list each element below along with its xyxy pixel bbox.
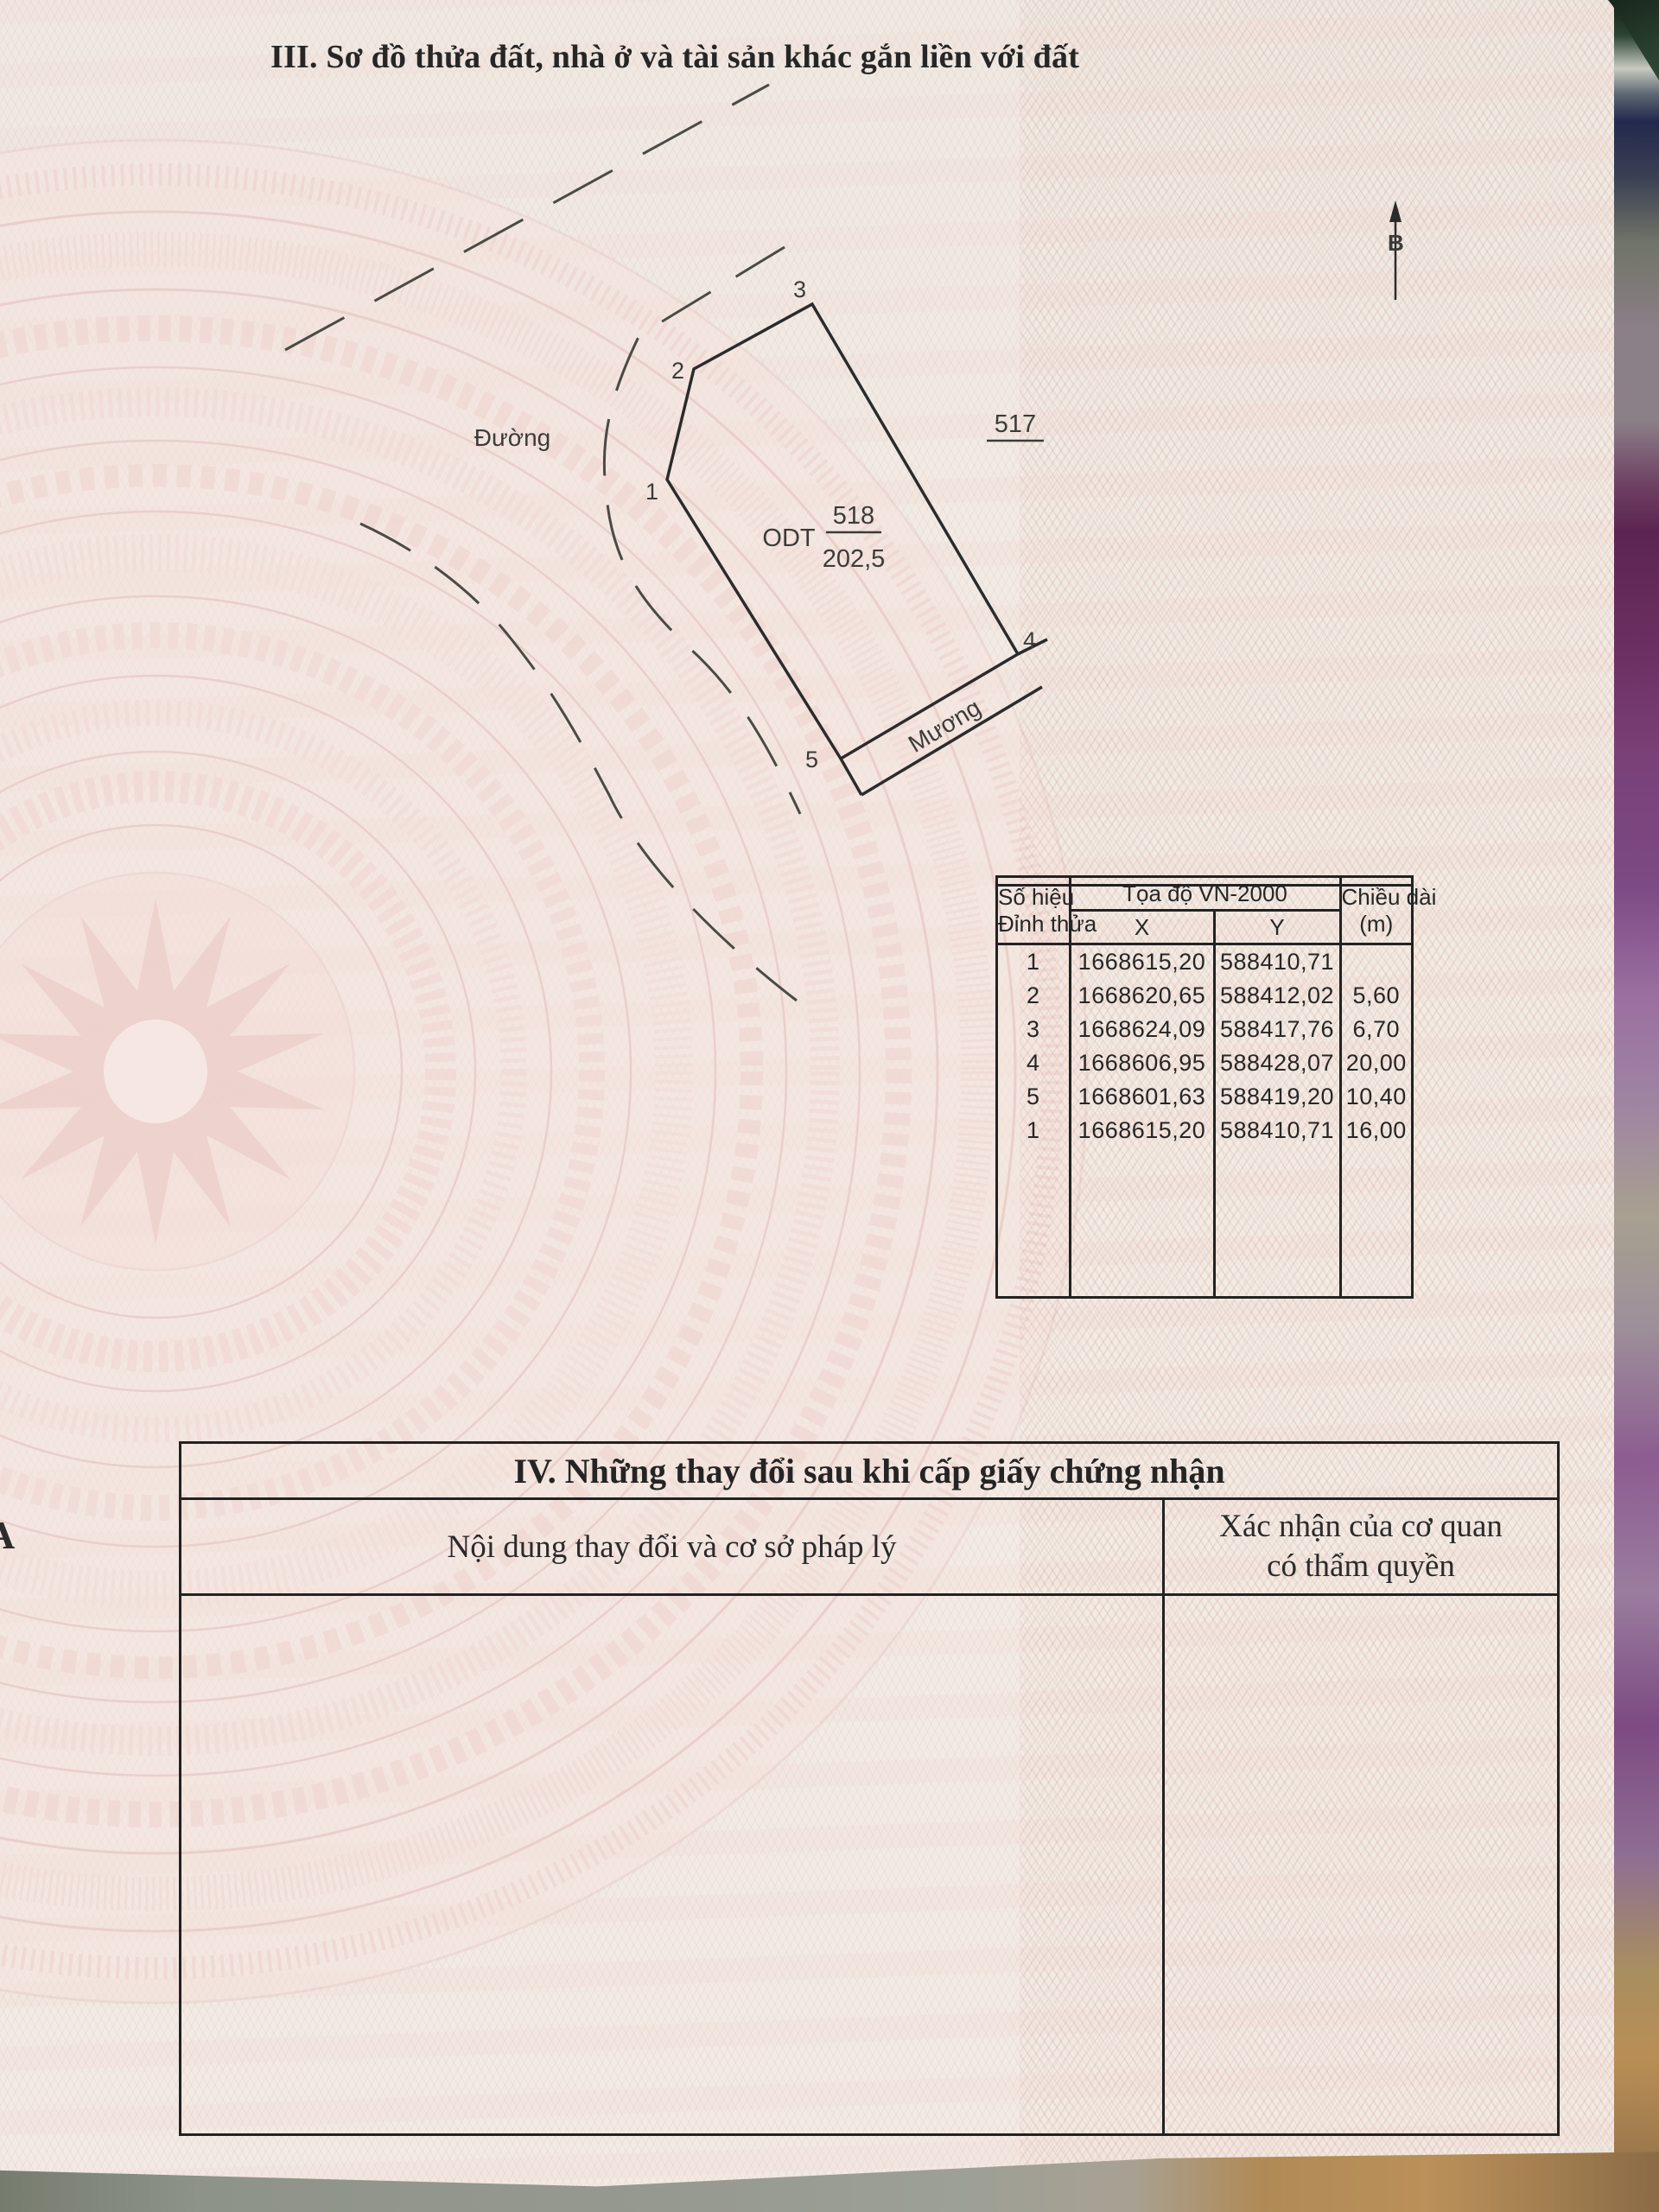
cell-x: 1668615,20 [1070,1114,1214,1147]
cell-x: 1668601,63 [1070,1080,1214,1114]
cell-vertex-id: 3 [998,1013,1070,1046]
cell-vertex-id: 5 [998,1080,1070,1114]
cell-length: 20,00 [1340,1046,1411,1080]
col-header-coord-group: Tọa độ VN-2000 [1070,878,1340,911]
cell-x: 1668620,65 [1070,979,1214,1013]
table-row: 1 1668615,20 588410,71 16,00 [998,1114,1411,1147]
road-label: Đường [474,424,550,451]
table-row: 1 1668615,20 588410,71 [998,944,1411,980]
north-label: B [1388,230,1404,256]
cell-y: 588419,20 [1214,1080,1340,1114]
canal-label: Mương [904,694,985,758]
cell-y: 588428,07 [1214,1046,1340,1080]
table-row: 4 1668606,95 588428,07 20,00 [998,1046,1411,1080]
section4-title: IV. Những thay đổi sau khi cấp giấy chứn… [181,1444,1557,1500]
cell-y: 588412,02 [1214,979,1340,1013]
canal-bottom-line [861,687,1042,795]
cell-length: 5,60 [1340,979,1411,1013]
cell-vertex-id: 1 [998,1114,1070,1147]
coordinate-table: Số hiệu Đỉnh thửa Tọa độ VN-2000 Chiều d… [995,875,1414,1299]
cell-y: 588410,71 [1214,1114,1340,1147]
table-row: 2 1668620,65 588412,02 5,60 [998,979,1411,1013]
adjacent-parcel-number: 517 [995,410,1036,438]
section4-right-header-line1: Xác nhận của cơ quan [1219,1507,1503,1547]
land-certificate-page: { "page": { "section3_title": "III. Sơ đ… [0,0,1659,2212]
table-row: 5 1668601,63 588419,20 10,40 [998,1080,1411,1114]
road-dashed-line-far [285,85,769,350]
vertex-label-5: 5 [805,747,818,772]
cell-y: 588410,71 [1214,944,1340,980]
road-dashed-curve-outer [360,524,797,1001]
parcel-number: 518 [833,502,874,530]
section4-right-header: Xác nhận của cơ quan có thẩm quyền [1165,1500,1557,1593]
section4-body-left-cell [181,1596,1165,2133]
section4-body [181,1596,1557,2133]
cell-x: 1668624,09 [1070,1013,1214,1046]
north-arrow-head [1389,200,1402,222]
cell-length: 16,00 [1340,1114,1411,1147]
land-use-code: ODT [762,524,816,552]
cell-vertex-id: 2 [998,979,1070,1013]
cell-length: 10,40 [1340,1080,1411,1114]
cell-length: 6,70 [1340,1013,1411,1046]
cell-length [1340,944,1411,980]
photo-background-right [1614,0,1659,2212]
col-header-vertex-id: Số hiệu Đỉnh thửa [998,878,1070,944]
coordinate-table-double-rule [998,884,1411,887]
col-header-length-line1: Chiều dài [1342,884,1411,911]
col-header-y: Y [1214,911,1340,944]
canal-end-line [841,759,861,795]
cell-x: 1668606,95 [1070,1046,1214,1080]
col-header-length: Chiều dài (m) [1340,878,1411,944]
section4-right-header-line2: có thẩm quyền [1267,1547,1455,1586]
vertex-label-2: 2 [671,358,684,384]
vertex-label-4: 4 [1023,627,1036,653]
cell-x: 1668615,20 [1070,944,1214,980]
cell-vertex-id: 1 [998,944,1070,980]
section4-table: IV. Những thay đổi sau khi cấp giấy chứn… [179,1441,1560,2136]
cell-y: 588417,76 [1214,1013,1340,1046]
col-header-vertex-id-line2: Đỉnh thửa [998,911,1069,938]
vertex-label-3: 3 [793,276,806,302]
col-header-vertex-id-line1: Số hiệu [998,884,1069,911]
vertex-label-1: 1 [645,479,658,505]
parcel-area: 202,5 [823,545,886,573]
section4-left-header: Nội dung thay đổi và cơ sở pháp lý [181,1500,1165,1593]
col-header-length-line2: (m) [1342,911,1411,938]
table-row: 3 1668624,09 588417,76 6,70 [998,1013,1411,1046]
cell-vertex-id: 4 [998,1046,1070,1080]
